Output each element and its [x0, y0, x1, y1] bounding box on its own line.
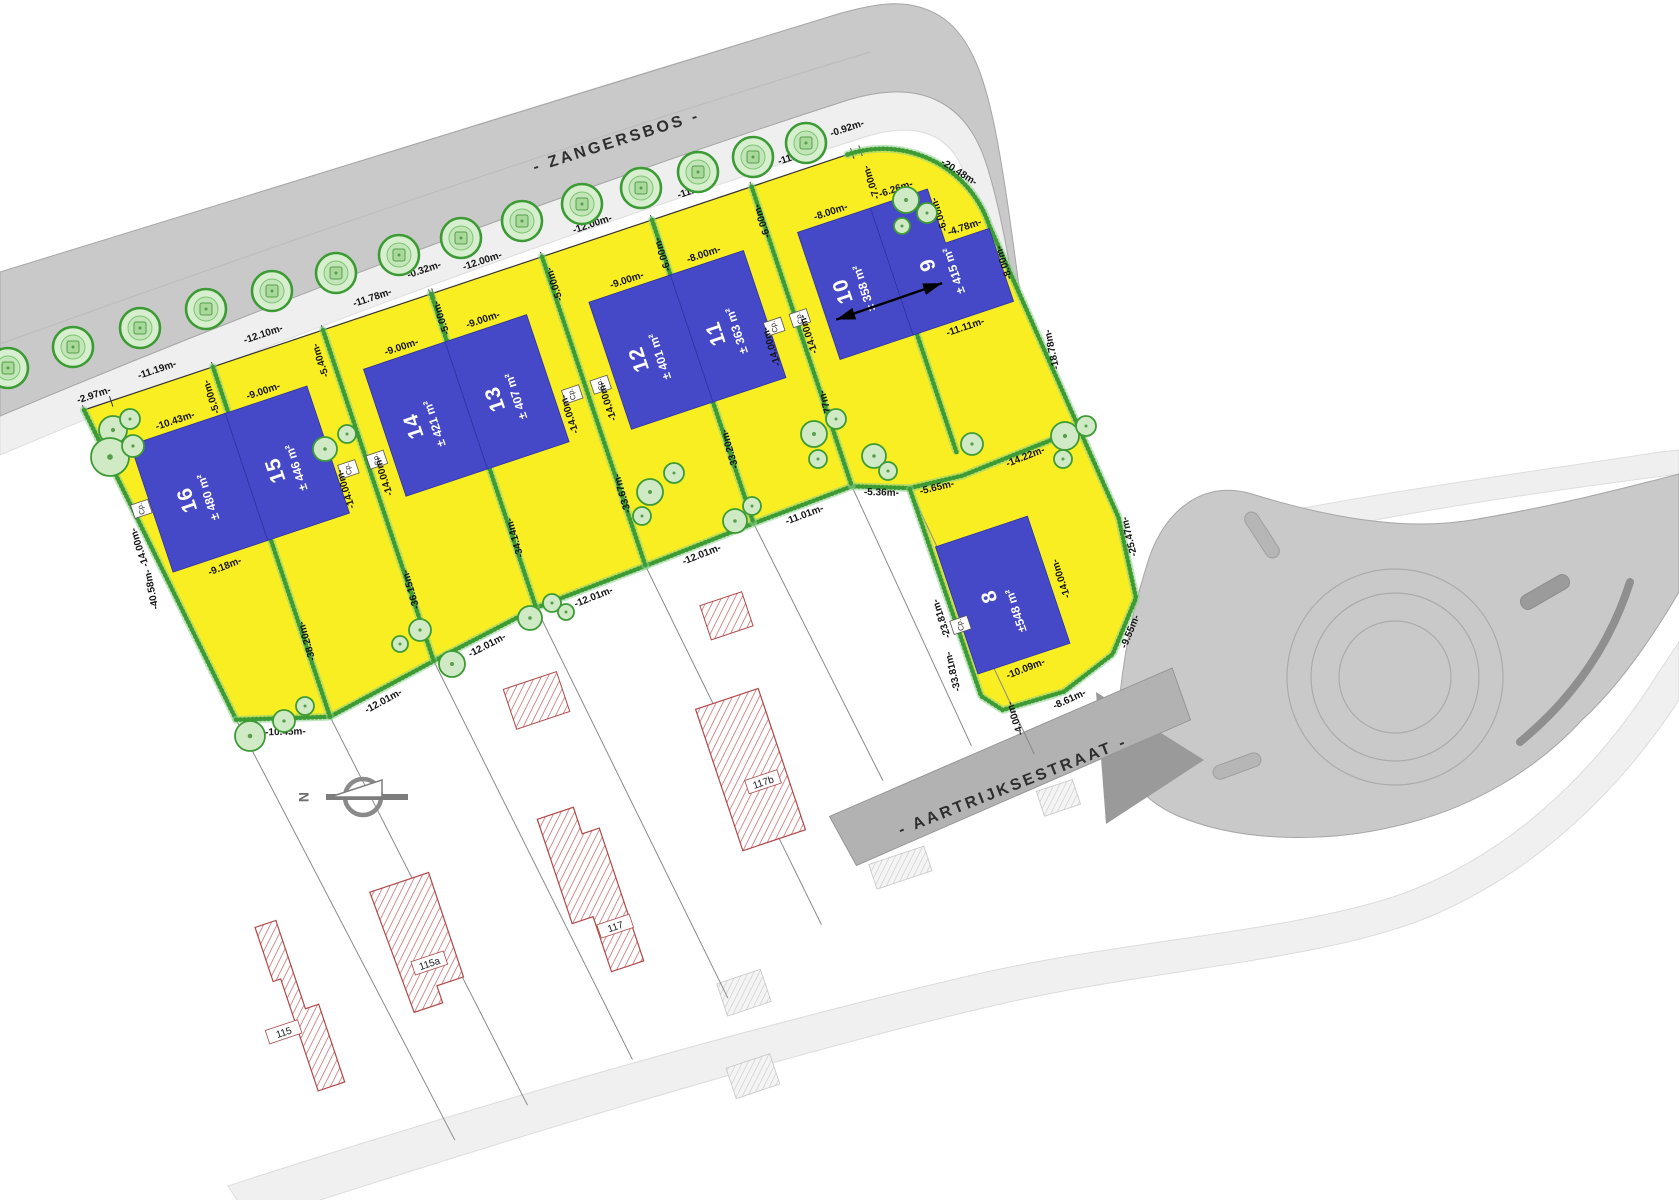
street-tree-icon	[53, 327, 93, 367]
tree-dot	[418, 628, 421, 631]
tree-icon	[826, 409, 846, 429]
tree-icon	[120, 409, 140, 429]
tree-dot	[565, 611, 568, 614]
tree-icon	[296, 697, 314, 715]
street-tree-icon	[252, 271, 292, 311]
street-tree-icon	[186, 289, 226, 329]
street-tree-icon	[441, 218, 481, 258]
tree-icon	[338, 425, 356, 443]
tree-icon	[633, 507, 651, 525]
tree-dot	[835, 418, 838, 421]
street-tree-icon	[621, 168, 661, 208]
tree-icon	[1076, 416, 1096, 436]
tree-dot	[323, 447, 327, 451]
tree-icon	[893, 187, 919, 213]
street-tree-icon	[562, 184, 602, 224]
tree-dot	[398, 254, 401, 257]
tree-dot	[205, 308, 208, 311]
tree-dot	[139, 327, 142, 330]
street-tree-icon	[502, 201, 542, 241]
tree-dot	[521, 220, 524, 223]
tree-dot	[752, 156, 755, 159]
tree-dot	[970, 442, 973, 445]
site-plan-canvas: - AARTRIJKSESTRAAT - 16± 480 m²15± 446 m…	[0, 0, 1679, 1200]
tree-icon	[961, 433, 983, 455]
tree-dot	[346, 433, 349, 436]
tree-icon	[743, 497, 761, 515]
tree-icon	[273, 710, 295, 732]
tree-dot	[460, 237, 463, 240]
street-tree-icon	[379, 235, 419, 275]
compass-north-label: N	[296, 792, 312, 802]
tree-dot	[901, 225, 904, 228]
street-tree-icon	[733, 137, 773, 177]
tree-icon	[637, 479, 663, 505]
tree-icon	[917, 203, 937, 223]
tree-dot	[673, 472, 676, 475]
tree-dot	[551, 602, 554, 605]
tree-dot	[648, 490, 652, 494]
site-plan: - AARTRIJKSESTRAAT - 16± 480 m²15± 446 m…	[0, 0, 1679, 1200]
tree-icon	[313, 437, 337, 461]
tree-dot	[1063, 434, 1067, 438]
tree-icon	[879, 462, 897, 480]
tree-dot	[72, 346, 75, 349]
street-tree-icon	[786, 123, 826, 163]
tree-dot	[304, 705, 307, 708]
tree-dot	[399, 643, 402, 646]
tree-dot	[751, 505, 754, 508]
tree-dot	[812, 432, 816, 436]
tree-dot	[271, 290, 274, 293]
tree-dot	[817, 458, 820, 461]
tree-dot	[887, 470, 890, 473]
tree-icon	[894, 218, 910, 234]
tree-dot	[528, 616, 532, 620]
tree-dot	[7, 367, 10, 370]
tree-dot	[581, 203, 584, 206]
tree-dot	[640, 187, 643, 190]
tree-dot	[107, 454, 113, 460]
tree-dot	[733, 519, 737, 523]
tree-icon	[235, 721, 265, 751]
tree-dot	[1062, 458, 1065, 461]
street-tree-icon	[120, 308, 160, 348]
tree-icon	[809, 450, 827, 468]
street-tree-icon	[316, 253, 356, 293]
tree-dot	[131, 444, 134, 447]
tree-dot	[697, 171, 700, 174]
tree-dot	[904, 198, 908, 202]
tree-dot	[248, 734, 253, 739]
tree-icon	[392, 636, 408, 652]
tree-dot	[872, 454, 876, 458]
tree-icon	[409, 619, 431, 641]
tree-icon	[439, 651, 465, 677]
tree-icon	[664, 463, 684, 483]
tree-icon	[122, 435, 144, 457]
tree-dot	[335, 272, 338, 275]
tree-icon	[1051, 422, 1079, 450]
street-tree-icon	[678, 152, 718, 192]
tree-dot	[926, 212, 929, 215]
tree-dot	[641, 515, 644, 518]
dimension-label: -5.36m-	[864, 487, 899, 499]
tree-icon	[801, 421, 827, 447]
tree-dot	[805, 142, 808, 145]
tree-dot	[282, 719, 285, 722]
tree-dot	[1085, 425, 1088, 428]
tree-dot	[129, 418, 132, 421]
tree-dot	[450, 662, 454, 666]
tree-dot	[111, 428, 115, 432]
tree-icon	[558, 604, 574, 620]
tree-icon	[1054, 450, 1072, 468]
tree-icon	[518, 606, 542, 630]
street-tree-icon	[0, 348, 28, 388]
tree-icon	[723, 509, 747, 533]
